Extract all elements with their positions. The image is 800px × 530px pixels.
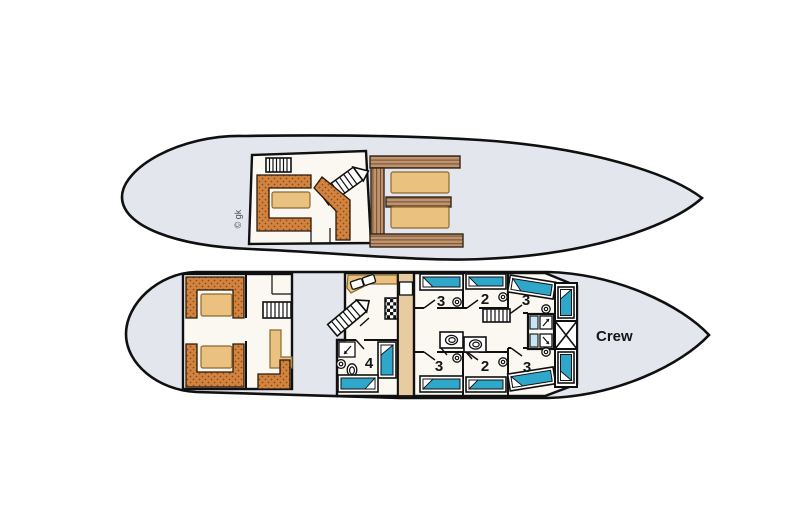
stairs-icon [263, 302, 291, 318]
bunk-bed-icon [378, 342, 396, 378]
deck-table-icon [391, 207, 449, 228]
bed-icon [338, 375, 378, 392]
deck-bench-bottom [370, 234, 463, 247]
upper-deck: © gk [122, 135, 702, 259]
cabin-number: 2 [481, 291, 489, 308]
shower-icon [540, 316, 552, 329]
stairs-icon [483, 309, 510, 322]
shower-panel [530, 334, 538, 347]
shower-unit [528, 314, 554, 349]
copyright-label: © gk [233, 209, 243, 228]
cabin-number: 4 [365, 355, 374, 372]
sink-icon [499, 293, 507, 301]
shower-icon [540, 334, 552, 347]
deck-plan-canvas: © gk Crew [0, 0, 800, 530]
bed-icon [420, 376, 463, 392]
salon-table-icon [201, 346, 232, 368]
salon [183, 274, 292, 389]
sink-icon [337, 360, 346, 369]
sink-icon [453, 354, 461, 362]
corridor-door [400, 282, 413, 295]
cabin-number: 2 [481, 358, 489, 375]
cabin-number: 3 [435, 358, 443, 375]
saloon-table-icon [272, 192, 310, 208]
stairs-icon [266, 158, 291, 172]
sink-icon [499, 358, 507, 366]
storage-hatch-icon [555, 321, 577, 349]
wheelhouse-saloon [249, 151, 371, 244]
cabin-number: 3 [523, 359, 531, 376]
lower-deck: Crew [126, 272, 709, 398]
deck-bench-top [370, 156, 460, 168]
cabin-number: 3 [522, 292, 530, 309]
deck-bench-left [371, 168, 384, 238]
sink-icon [542, 305, 550, 313]
bed-icon [466, 274, 506, 289]
berth-alcove [555, 349, 577, 387]
corridor [398, 273, 414, 396]
cabin-number: 3 [437, 293, 445, 310]
berth-alcove [555, 283, 577, 321]
shower-panel [530, 316, 538, 329]
stove-icon [385, 298, 398, 319]
sink-icon [542, 348, 550, 356]
shower-icon [339, 342, 355, 357]
salon-table-icon [201, 294, 232, 316]
sink-icon [453, 298, 461, 306]
deck-table-icon [391, 172, 449, 193]
bed-icon [466, 377, 506, 392]
cabin-block: 3 2 3 3 2 3 [414, 273, 577, 396]
crew-area-label: Crew [596, 328, 633, 345]
deck-bench-middle [386, 197, 451, 207]
bed-icon [420, 274, 463, 290]
